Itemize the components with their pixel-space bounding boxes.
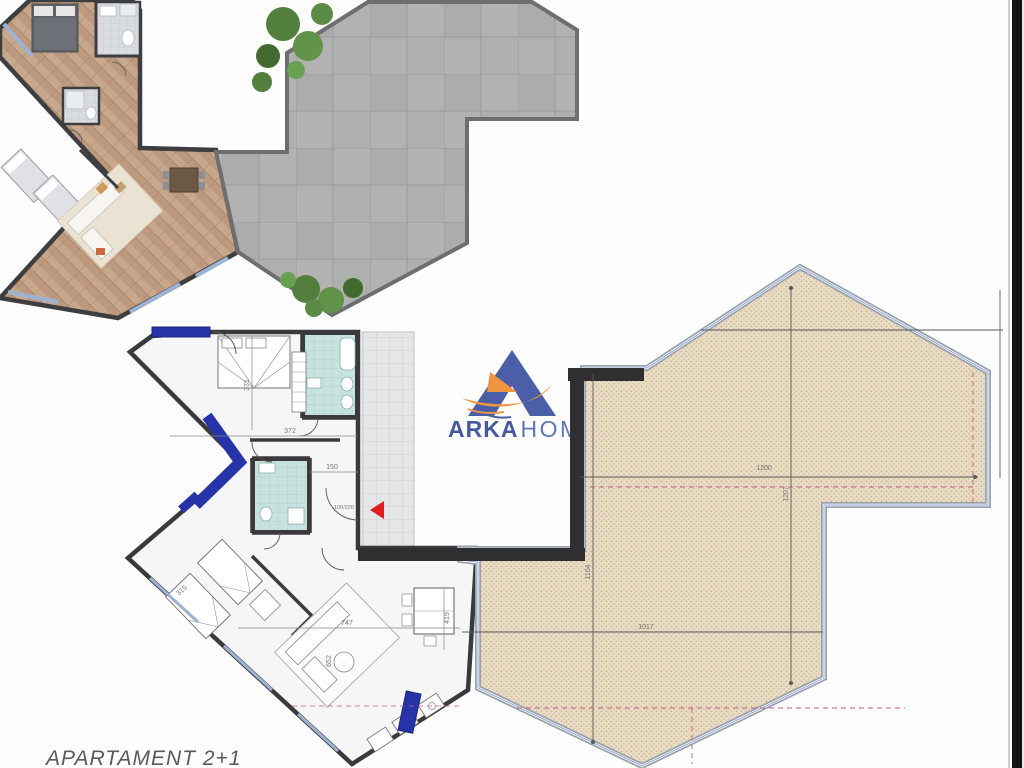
sink	[100, 6, 116, 16]
toilet	[341, 377, 353, 391]
toilet	[86, 107, 96, 119]
dimension-label: 371	[244, 379, 251, 391]
scan-edge-strip	[1008, 0, 1024, 768]
logo-text-arka: ARKA	[448, 416, 518, 442]
dimension-label: 1207	[783, 486, 790, 502]
dimension-label: 372	[284, 428, 296, 435]
dimension-label: 419	[444, 612, 451, 624]
shower-tray	[66, 91, 84, 109]
technical-floor-plan: 371 372 150 100/220 315 747 652 419	[128, 327, 476, 764]
bathtub	[340, 338, 355, 370]
dimension-label: 150	[326, 464, 338, 471]
logo-a-glyph	[468, 350, 556, 416]
toilet	[122, 30, 134, 46]
toilet	[260, 507, 272, 521]
master-bed	[32, 4, 78, 52]
dimension-label: 1104	[585, 564, 592, 579]
paved-terrace	[216, 2, 577, 317]
corridor-tiles	[362, 332, 414, 546]
rendered-floor-plan	[0, 0, 238, 318]
floor-plan-sheet: ARKAHOME	[0, 0, 1024, 768]
floor-plan-drawing: ARKAHOME	[0, 0, 1024, 768]
washer	[288, 508, 304, 524]
dimension-label: 652	[326, 655, 333, 667]
dimension-label: 1017	[638, 624, 654, 631]
bidet	[341, 395, 353, 409]
dimension-label: 747	[341, 620, 353, 627]
dimension-label: 1200	[756, 465, 772, 472]
apartment-caption: APARTAMENT 2+1	[44, 747, 241, 768]
sink	[307, 378, 321, 388]
roof-terrace-floor	[460, 267, 988, 766]
shower	[120, 4, 136, 16]
dimension-label: 100/220	[334, 505, 354, 511]
sink	[259, 463, 275, 473]
